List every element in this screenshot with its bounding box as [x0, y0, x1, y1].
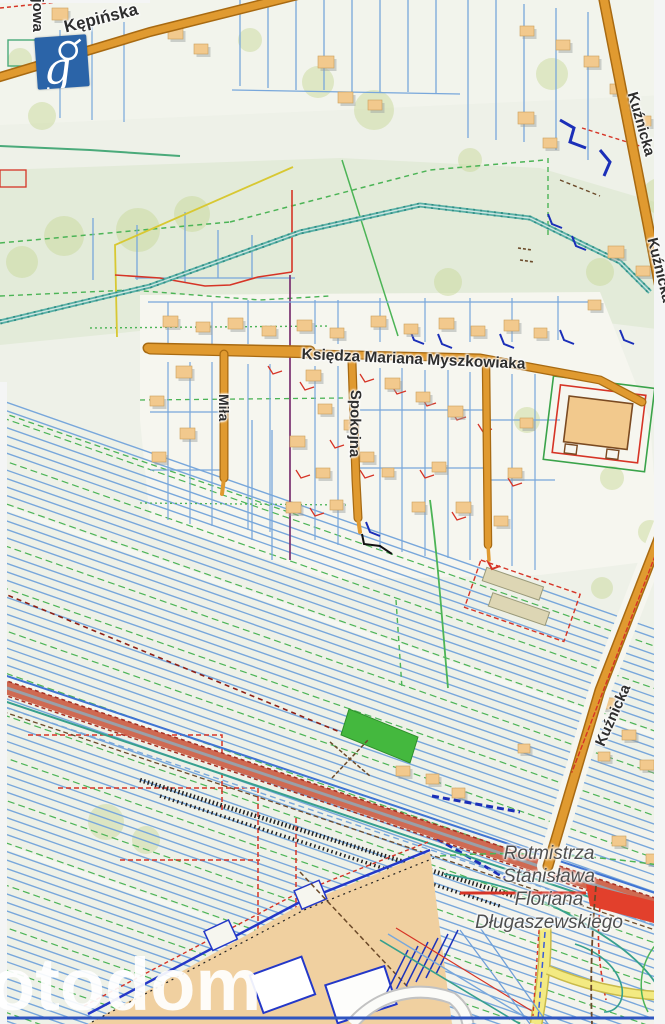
map-canvas[interactable]: Kępińska lejowa Księdza Mariana Myszkowi… [0, 0, 665, 1024]
logo-glyph-graphic: g [34, 34, 90, 90]
geoportal-logo[interactable]: g [34, 34, 90, 90]
logo-letter: g [42, 42, 74, 89]
rotmistrza-line4: Długaszewskiego [424, 911, 665, 934]
top-margin [0, 0, 150, 3]
rotmistrza-line2: Stanisława [424, 865, 665, 888]
left-margin [0, 382, 7, 1024]
street-label-rotmistrza: Rotmistrza Stanisława Floriana Długaszew… [424, 842, 665, 934]
rotmistrza-line1: Rotmistrza [424, 842, 665, 865]
watermark: otodom [0, 948, 261, 1022]
rotmistrza-line3: Floriana [424, 888, 665, 911]
